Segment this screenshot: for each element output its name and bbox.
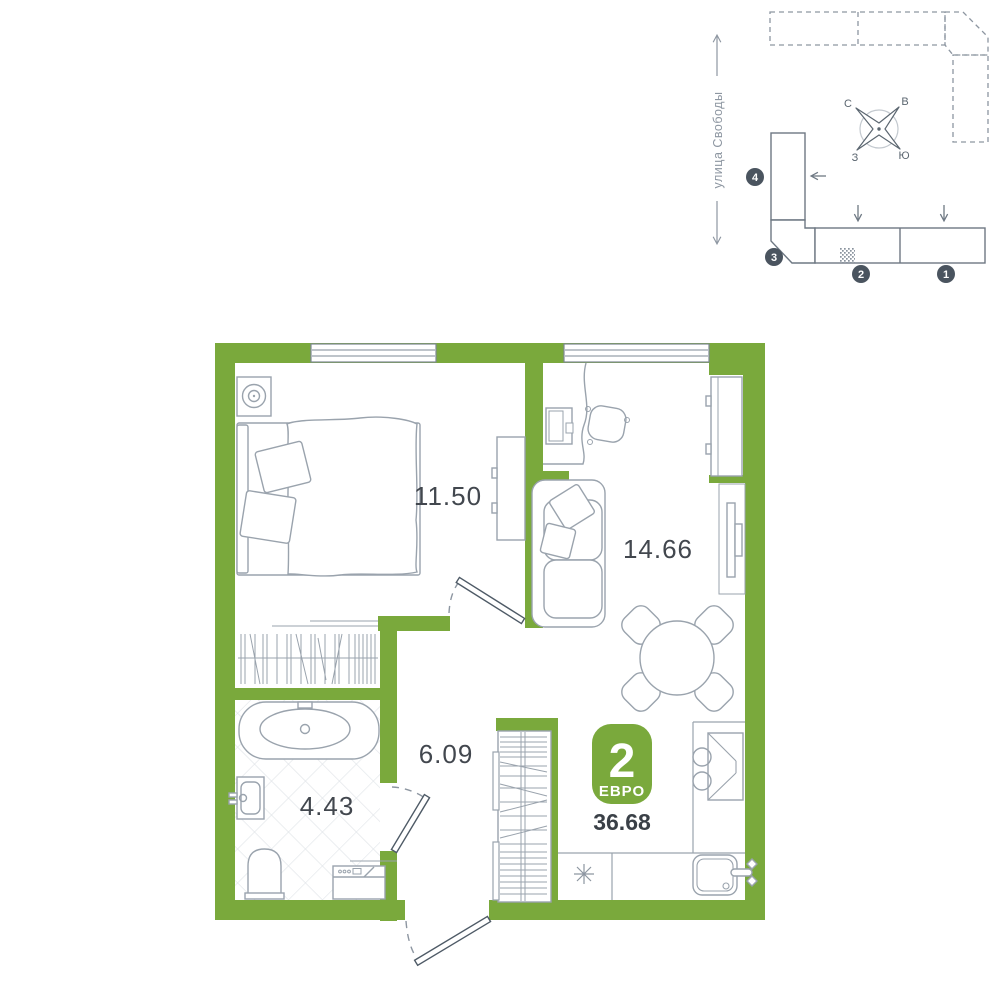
door-bedroom	[449, 577, 525, 623]
desk-chair	[586, 404, 630, 444]
fridge-spot-asterisk-icon	[574, 864, 594, 884]
badge-rooms-count: 2	[609, 735, 636, 788]
sofa	[532, 480, 605, 627]
tv-unit	[719, 484, 745, 594]
window-living	[564, 344, 709, 362]
toilet	[245, 849, 284, 899]
street-indicator: улица Свободы	[711, 36, 725, 243]
apartment-floorplan: 11.50 14.66 6.09 4.43 2 ЕВРО 36.68	[215, 343, 765, 965]
site-minimap: 1 2 3 4 С В З Ю	[711, 12, 988, 283]
compass-west-label: З	[852, 152, 859, 164]
street-label: улица Свободы	[711, 92, 725, 189]
section-badge-1: 1	[937, 265, 955, 283]
compass-east-label: В	[901, 96, 908, 108]
section-badge-1-label: 1	[943, 269, 949, 281]
bedroom-closet	[238, 621, 378, 684]
section-badge-2: 2	[852, 265, 870, 283]
builtin-wardrobe	[706, 377, 742, 476]
door-entrance	[406, 916, 491, 965]
room-area-label-hallway: 6.09	[419, 739, 474, 769]
compass-south-label: Ю	[898, 150, 909, 162]
section-badge-4-label: 4	[752, 172, 759, 184]
badge-type-label: ЕВРО	[599, 783, 645, 800]
building-outline-solid	[771, 133, 985, 263]
hallway-furniture	[493, 731, 551, 902]
door-bathroom	[391, 787, 429, 853]
section-badge-3: 3	[765, 248, 783, 266]
section-badge-2-label: 2	[858, 269, 864, 281]
room-area-label-bedroom: 11.50	[414, 481, 482, 511]
dining-set	[618, 602, 738, 716]
hall-wardrobe	[493, 731, 551, 902]
section-badge-3-label: 3	[771, 252, 777, 264]
apartment-type-badge: 2 ЕВРО 36.68	[592, 724, 652, 835]
section-badge-4: 4	[746, 168, 764, 186]
dresser	[492, 437, 525, 540]
desk	[543, 363, 587, 464]
room-area-label-living-kitchen: 14.66	[623, 534, 693, 564]
apartment-location-marker	[840, 248, 855, 263]
compass-icon: С В З Ю	[844, 96, 910, 164]
floorplan-canvas: 1 2 3 4 С В З Ю	[0, 0, 1000, 1000]
compass-north-label: С	[844, 98, 852, 110]
stove-hood	[693, 733, 743, 800]
total-area-label: 36.68	[593, 809, 651, 835]
bed	[237, 417, 420, 576]
bathtub	[239, 702, 379, 759]
window-bedroom	[311, 344, 436, 362]
floorplan-page: 1 2 3 4 С В З Ю	[0, 0, 1000, 1000]
room-area-label-bathroom: 4.43	[300, 791, 355, 821]
ceiling-lamp-icon	[237, 377, 271, 416]
building-entrance-arrows	[812, 176, 944, 220]
